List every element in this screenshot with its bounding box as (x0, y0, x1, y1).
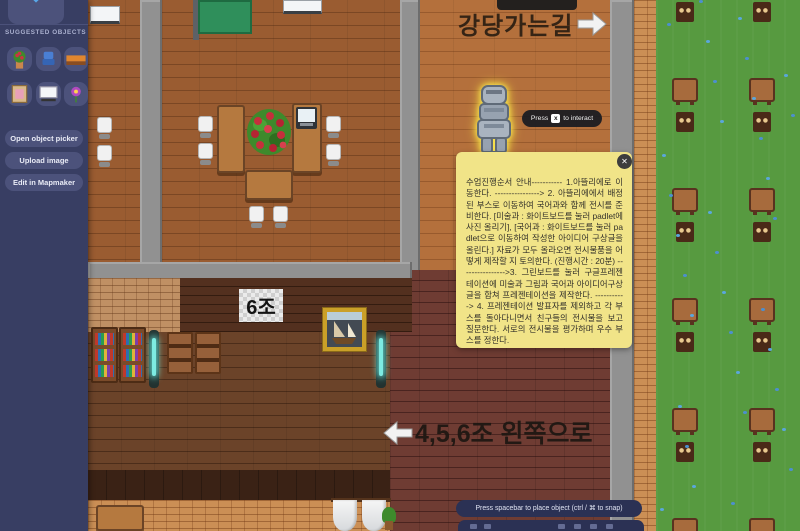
blue-flower (789, 468, 793, 471)
green-chalkboard (198, 0, 252, 34)
blue-flower (745, 57, 749, 60)
object-tile-whiteboard[interactable] (36, 82, 61, 106)
blue-flower (752, 97, 756, 100)
office-chair (197, 142, 214, 166)
school-desk (672, 518, 698, 531)
blue-chair-icon (36, 47, 61, 71)
blue-flower (669, 194, 673, 197)
empty-shelf (167, 332, 193, 374)
blue-flower (685, 445, 689, 448)
bookshelf (119, 327, 146, 383)
office-chair (197, 115, 214, 139)
wall-plank-dark (180, 278, 412, 332)
school-desk (749, 188, 775, 212)
purple-flower-icon (64, 82, 88, 106)
blue-flower (722, 291, 726, 294)
object-tile-blue-chair[interactable] (36, 47, 61, 71)
wall-horizontal (88, 262, 412, 278)
whiteboard-icon (36, 82, 61, 106)
laptop (296, 107, 317, 129)
object-tile-wooden-counter[interactable] (64, 47, 88, 71)
blue-flower (676, 234, 680, 237)
office-chair (325, 115, 342, 139)
object-tile-purple-flower[interactable] (64, 82, 88, 106)
bottom-toolbar-partial[interactable] (458, 520, 644, 531)
panel-divider (0, 24, 88, 25)
school-desk (672, 298, 698, 322)
office-chair (325, 143, 342, 167)
plant-pot (385, 521, 393, 530)
school-chair (753, 112, 771, 132)
left-room-board (90, 6, 120, 24)
wall-left-corridor (140, 0, 162, 262)
school-desk (672, 188, 698, 212)
school-chair (676, 112, 694, 132)
window-curtain (333, 500, 357, 531)
office-chair (248, 205, 265, 229)
hall-sign-text: 강당가는길 (458, 6, 573, 41)
blue-flower (699, 0, 703, 3)
school-chair (753, 2, 771, 22)
brick-column-right (634, 0, 656, 531)
blue-flower (784, 74, 788, 77)
blue-flower (736, 371, 740, 374)
blue-flower (720, 120, 724, 123)
toolbar-icon[interactable] (558, 524, 565, 529)
interact-suffix: to interact (563, 115, 593, 122)
upload-image-button[interactable]: Upload image (5, 152, 83, 169)
school-chair (753, 222, 771, 242)
blue-flower (706, 40, 710, 43)
office-chair (96, 116, 113, 140)
school-chair (753, 442, 771, 462)
picture-frame-icon (7, 82, 32, 106)
school-desk (672, 78, 698, 102)
blue-flower (690, 314, 694, 317)
wooden-counter-icon (64, 47, 88, 71)
interact-prefix: Press (531, 115, 548, 122)
place-object-tooltip: Press spacebar to place object (ctrl / ⌘… (456, 500, 642, 517)
object-tile-potted-red-flower[interactable] (7, 47, 32, 71)
blue-flower (667, 23, 671, 26)
blue-flower (731, 502, 735, 505)
note-close-button[interactable]: ✕ (617, 154, 632, 169)
potted-red-flower-icon (7, 47, 32, 71)
hall-sign: 강당가는길 (458, 6, 638, 41)
object-tile-picture-frame[interactable] (7, 82, 32, 106)
bottom-wall-top (88, 470, 390, 500)
blue-flower (683, 274, 687, 277)
x-keycap-icon: x (551, 114, 560, 123)
bottom-table (96, 505, 144, 531)
group6-sign: 6조 (239, 289, 283, 322)
open-object-picker-button[interactable]: Open object picker (5, 130, 83, 147)
school-chair (676, 2, 694, 22)
meeting-table-bottom (245, 170, 293, 200)
map-canvas[interactable]: 6조 강당가는길 4,5,6조 왼쪽으로 (0, 0, 800, 531)
grass-yard (656, 0, 800, 531)
blue-flower (708, 211, 712, 214)
blue-flower (660, 508, 664, 511)
school-desk (749, 518, 775, 531)
office-chair (96, 144, 113, 168)
toolbar-icon[interactable] (606, 524, 613, 529)
bottom-direction-text: 4,5,6조 왼쪽으로 (415, 414, 593, 450)
blue-flower (791, 114, 795, 117)
blue-flower (738, 17, 742, 20)
blue-flower (743, 411, 747, 414)
note-popup: 수업진행순서 안내----------- 1.아뜰리에로 이동한다. -----… (456, 152, 632, 348)
arrow-left-icon (383, 419, 413, 446)
note-body: 수업진행순서 안내----------- 1.아뜰리에로 이동한다. -----… (466, 177, 623, 348)
selected-object-tile[interactable] (8, 0, 64, 24)
blue-flower (766, 177, 770, 180)
app-window: 6조 강당가는길 4,5,6조 왼쪽으로 (0, 0, 800, 531)
blue-flower (759, 137, 763, 140)
blue-flower (729, 331, 733, 334)
blue-flower (775, 388, 779, 391)
toolbar-icon[interactable] (590, 524, 597, 529)
ship-painting[interactable] (322, 307, 367, 352)
blue-flower (713, 80, 717, 83)
toolbar-icon[interactable] (484, 524, 491, 529)
gem-icon (30, 0, 41, 3)
rose-bush (246, 107, 292, 157)
blue-flower (768, 348, 772, 351)
school-chair (676, 332, 694, 352)
arrow-right-icon (577, 11, 607, 37)
cyan-lamp (149, 330, 159, 388)
school-desk (672, 408, 698, 432)
group6-sign-text: 6조 (246, 291, 276, 320)
wall-brick-left (88, 278, 180, 332)
toolbar-icon[interactable] (470, 524, 477, 529)
blue-flower (761, 308, 765, 311)
statue-object[interactable] (470, 84, 518, 162)
school-chair (676, 222, 694, 242)
blue-flower (662, 154, 666, 157)
bottom-direction-sign: 4,5,6조 왼쪽으로 (383, 414, 593, 450)
blue-flower (678, 405, 682, 408)
toolbar-icon[interactable] (574, 524, 581, 529)
suggested-objects-label: SUGGESTED OBJECTS (5, 29, 86, 36)
empty-shelf (195, 332, 221, 374)
bookshelf (91, 327, 118, 383)
cyan-lamp (376, 330, 386, 388)
wall-center-right (400, 0, 420, 270)
whiteboard-top (283, 0, 322, 14)
meeting-table-left (217, 105, 245, 173)
blue-flower (692, 485, 696, 488)
blue-flower (782, 428, 786, 431)
blue-flower (773, 217, 777, 220)
edit-in-mapmaker-button[interactable]: Edit in Mapmaker (5, 174, 83, 191)
blue-flower (715, 251, 719, 254)
school-desk (749, 408, 775, 432)
office-chair (272, 205, 289, 229)
interact-tooltip: Press x to interact (522, 110, 602, 127)
build-panel: SUGGESTED OBJECTS (0, 0, 88, 531)
